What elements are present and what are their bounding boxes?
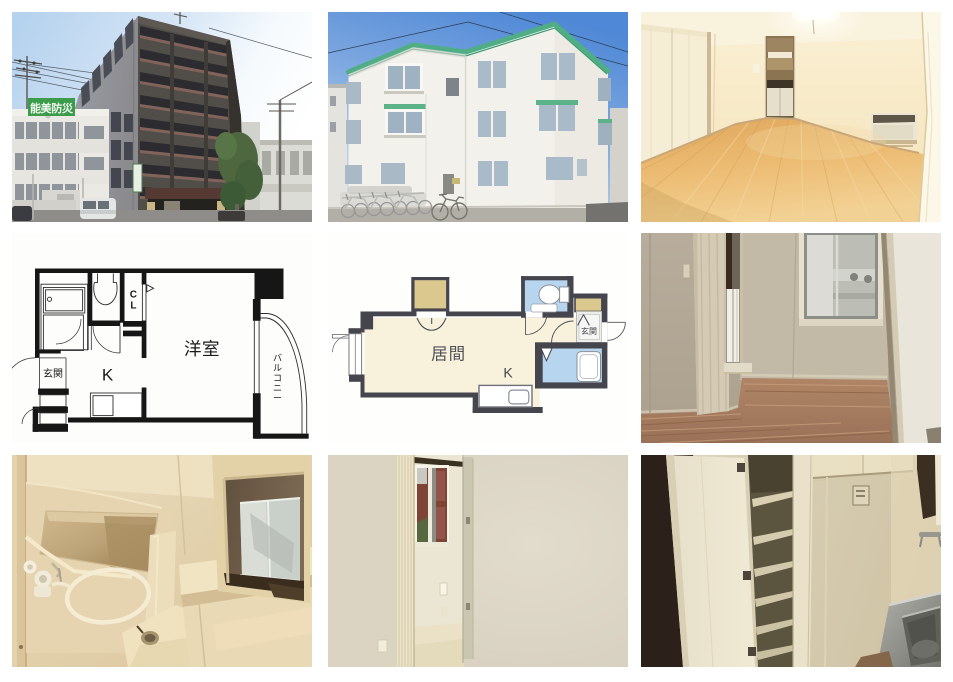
svg-text:バ: バ <box>273 353 282 363</box>
svg-text:能美防災: 能美防災 <box>30 101 74 115</box>
svg-text:玄関: 玄関 <box>43 367 63 380</box>
svg-text:L: L <box>130 301 136 312</box>
svg-text:ー: ー <box>273 393 282 403</box>
svg-text:玄関: 玄関 <box>581 326 597 336</box>
svg-text:ル: ル <box>273 363 282 373</box>
svg-text:洋室: 洋室 <box>184 339 220 359</box>
svg-text:居間: 居間 <box>431 346 466 364</box>
svg-text:コ: コ <box>273 373 282 383</box>
svg-text:K: K <box>503 365 513 381</box>
svg-text:ニ: ニ <box>273 383 282 393</box>
svg-text:C: C <box>130 290 137 301</box>
svg-text:K: K <box>102 366 114 385</box>
